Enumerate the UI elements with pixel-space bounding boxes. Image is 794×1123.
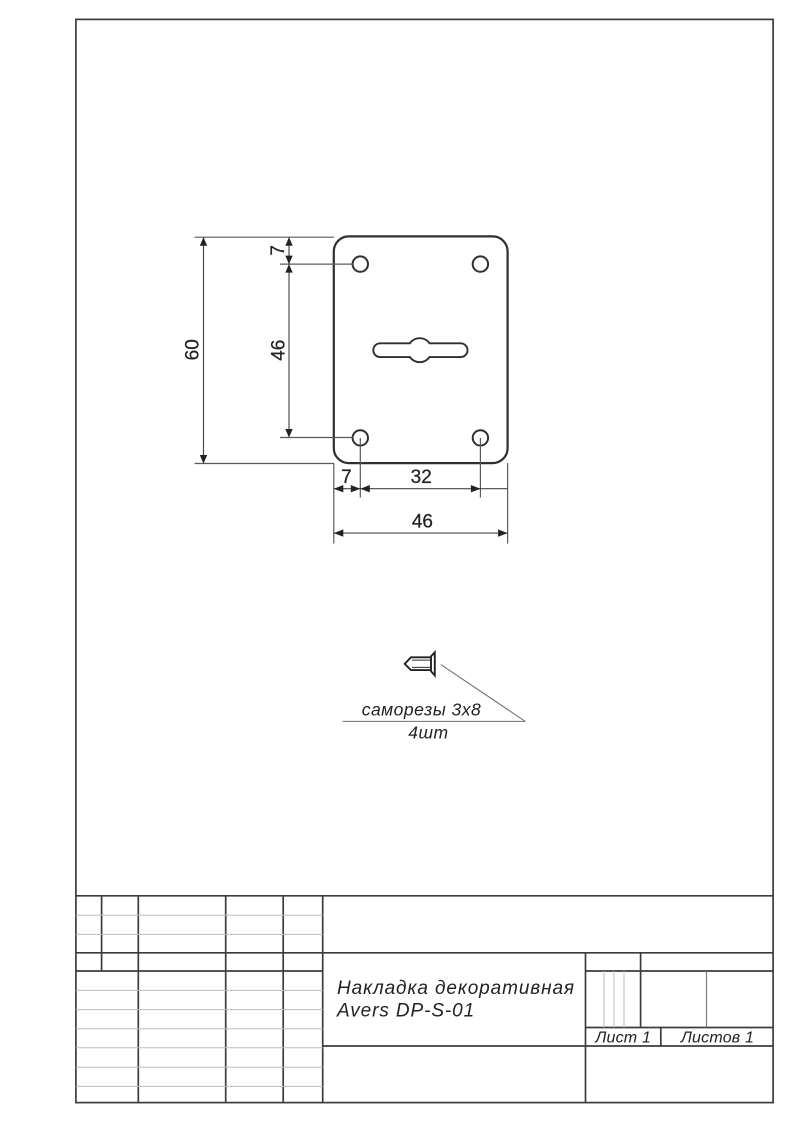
svg-text:Лист 1: Лист 1 bbox=[594, 1030, 651, 1047]
svg-text:46: 46 bbox=[412, 511, 433, 532]
svg-text:46: 46 bbox=[268, 340, 289, 361]
svg-text:саморезы 3х8: саморезы 3х8 bbox=[362, 700, 482, 720]
svg-text:7: 7 bbox=[268, 245, 289, 256]
svg-text:60: 60 bbox=[182, 339, 203, 360]
svg-text:Avers DP-S-01: Avers DP-S-01 bbox=[336, 1000, 475, 1021]
svg-text:7: 7 bbox=[341, 467, 352, 488]
svg-text:Накладка декоративная: Накладка декоративная bbox=[337, 978, 575, 999]
svg-text:32: 32 bbox=[411, 467, 432, 488]
svg-text:Листов 1: Листов 1 bbox=[680, 1030, 754, 1047]
svg-text:4шт: 4шт bbox=[408, 723, 448, 743]
